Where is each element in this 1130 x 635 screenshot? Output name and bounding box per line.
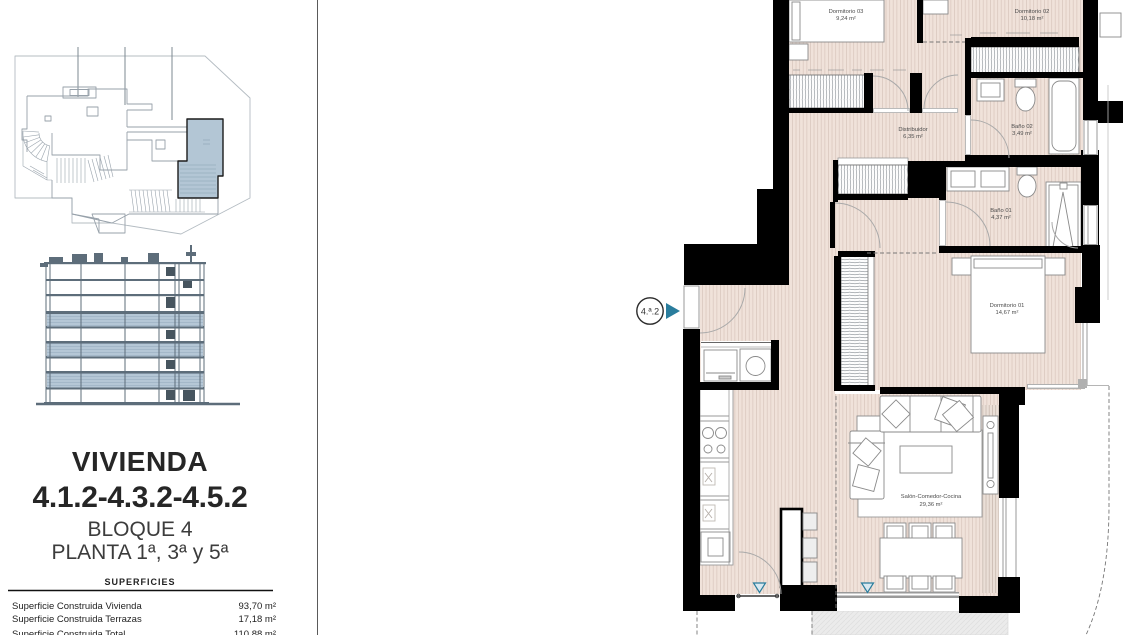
svg-text:Baño 02: Baño 02: [1011, 124, 1033, 130]
svg-text:110,88 m²: 110,88 m²: [234, 629, 276, 635]
svg-text:Superficie Construida Vivienda: Superficie Construida Vivienda: [12, 601, 142, 612]
svg-text:14,67 m²: 14,67 m²: [996, 310, 1019, 316]
svg-text:93,70 m²: 93,70 m²: [239, 601, 277, 612]
svg-text:VIVIENDA: VIVIENDA: [72, 446, 208, 477]
svg-text:29,36 m²: 29,36 m²: [920, 502, 943, 508]
svg-text:4.ª.2: 4.ª.2: [641, 307, 659, 317]
svg-text:4,37 m²: 4,37 m²: [991, 215, 1011, 221]
svg-text:9,24 m²: 9,24 m²: [836, 16, 856, 22]
svg-text:3,49 m²: 3,49 m²: [1012, 131, 1032, 137]
svg-text:BLOQUE 4: BLOQUE 4: [87, 518, 192, 541]
svg-text:Dormitorio 03: Dormitorio 03: [829, 9, 864, 15]
svg-text:6,35 m²: 6,35 m²: [903, 134, 923, 140]
svg-text:SUPERFICIES: SUPERFICIES: [104, 577, 175, 587]
svg-text:Superficie Construida Terrazas: Superficie Construida Terrazas: [12, 614, 142, 625]
svg-text:Baño 01: Baño 01: [990, 208, 1012, 214]
svg-text:Dormitorio 01: Dormitorio 01: [990, 303, 1025, 309]
svg-text:Dormitorio 02: Dormitorio 02: [1015, 9, 1050, 15]
svg-text:Distribuidor: Distribuidor: [898, 127, 927, 133]
svg-text:10,18 m²: 10,18 m²: [1021, 16, 1044, 22]
svg-text:Superficie Construida Total: Superficie Construida Total: [12, 629, 125, 635]
svg-text:PLANTA 1ª, 3ª y 5ª: PLANTA 1ª, 3ª y 5ª: [51, 541, 228, 564]
svg-text:Salón-Comedor-Cocina: Salón-Comedor-Cocina: [901, 494, 962, 500]
svg-text:17,18 m²: 17,18 m²: [239, 614, 277, 625]
svg-text:4.1.2-4.3.2-4.5.2: 4.1.2-4.3.2-4.5.2: [32, 481, 247, 514]
